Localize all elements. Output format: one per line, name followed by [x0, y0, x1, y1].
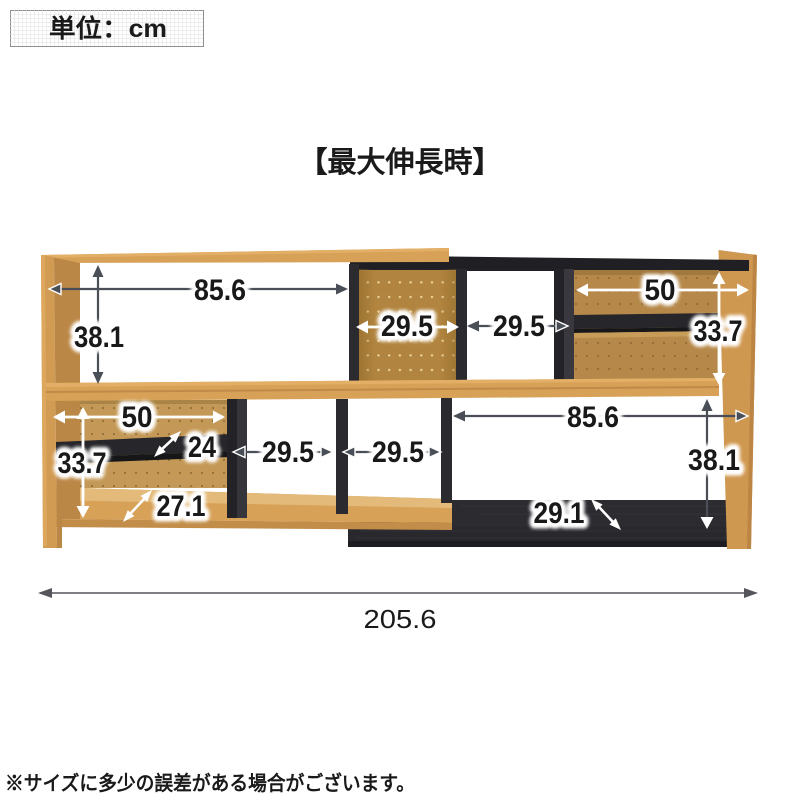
svg-text:27.1: 27.1 [157, 490, 206, 523]
svg-text:24: 24 [188, 431, 216, 464]
svg-text:38.1: 38.1 [688, 444, 740, 477]
svg-text:33.7: 33.7 [694, 315, 743, 348]
svg-text:単位：cm: 単位：cm [49, 14, 167, 43]
svg-text:50: 50 [122, 401, 153, 434]
svg-text:29.5: 29.5 [493, 310, 545, 343]
svg-text:50: 50 [645, 274, 676, 307]
svg-text:38.1: 38.1 [74, 321, 124, 354]
svg-text:【最大伸長時】: 【最大伸長時】 [298, 146, 501, 179]
svg-text:33.7: 33.7 [58, 447, 107, 480]
svg-text:29.5: 29.5 [372, 436, 424, 469]
svg-text:29.5: 29.5 [381, 310, 433, 343]
svg-text:29.5: 29.5 [262, 436, 314, 469]
svg-text:29.1: 29.1 [534, 497, 585, 530]
svg-text:85.6: 85.6 [567, 401, 619, 434]
svg-text:85.6: 85.6 [194, 274, 246, 307]
svg-text:※サイズに多少の誤差がある場合がございます。: ※サイズに多少の誤差がある場合がございます。 [5, 771, 415, 795]
svg-text:205.6: 205.6 [364, 604, 437, 634]
